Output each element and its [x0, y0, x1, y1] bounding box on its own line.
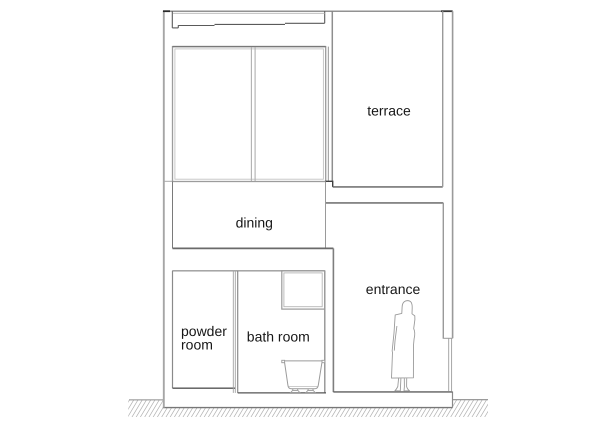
- svg-text:room: room: [181, 337, 213, 353]
- svg-text:terrace: terrace: [367, 103, 411, 119]
- svg-text:bath room: bath room: [247, 329, 310, 345]
- svg-text:dining: dining: [236, 215, 273, 231]
- svg-text:entrance: entrance: [366, 281, 421, 297]
